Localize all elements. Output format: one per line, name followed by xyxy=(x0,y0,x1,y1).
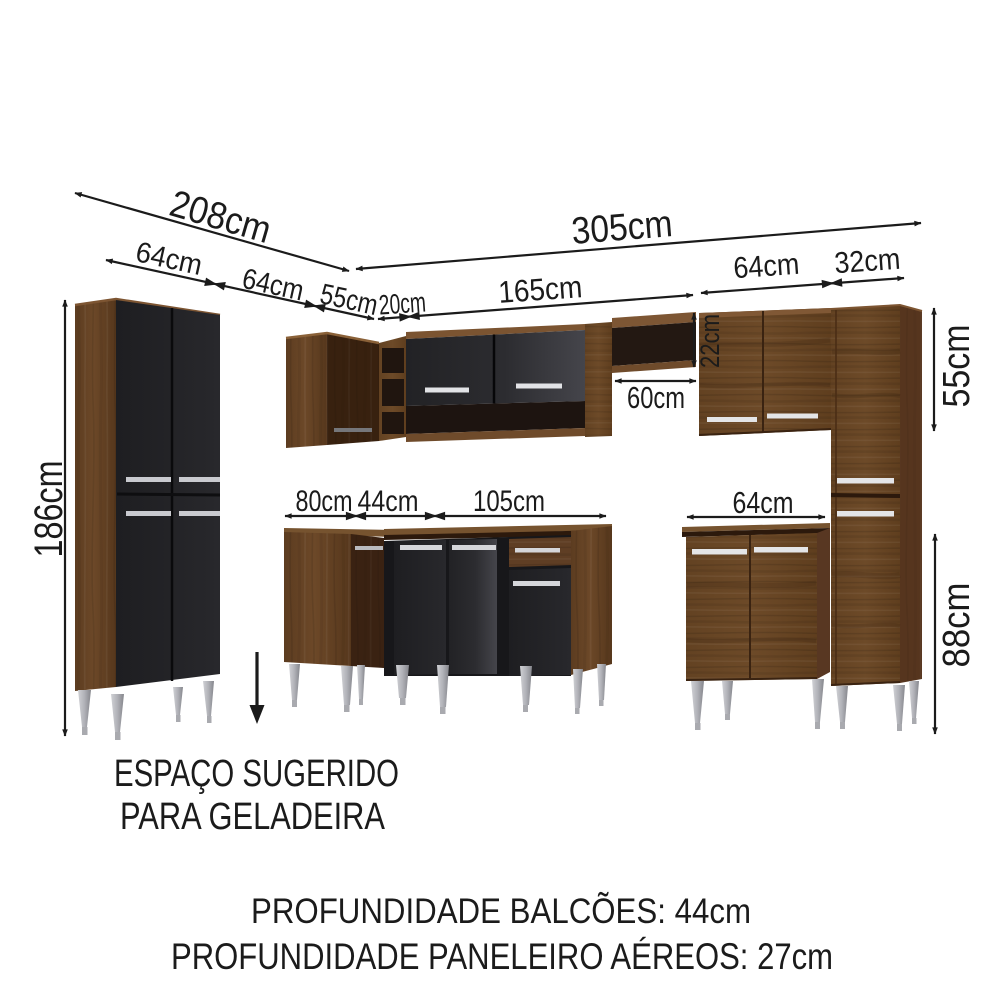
svg-text:186cm: 186cm xyxy=(27,461,71,558)
svg-text:PARA GELADEIRA: PARA GELADEIRA xyxy=(120,796,386,838)
svg-text:32cm: 32cm xyxy=(833,243,901,281)
svg-text:64cm: 64cm xyxy=(732,248,800,286)
svg-text:PROFUNDIDADE BALCÕES: 44cm: PROFUNDIDADE BALCÕES: 44cm xyxy=(251,891,751,931)
svg-text:64cm: 64cm xyxy=(733,485,794,520)
svg-text:60cm: 60cm xyxy=(627,380,685,415)
svg-text:80cm: 80cm xyxy=(296,485,353,518)
svg-text:22cm: 22cm xyxy=(695,314,725,368)
svg-text:ESPAÇO SUGERIDO: ESPAÇO SUGERIDO xyxy=(114,753,399,795)
svg-text:105cm: 105cm xyxy=(473,485,545,518)
svg-text:44cm: 44cm xyxy=(358,485,419,518)
svg-text:305cm: 305cm xyxy=(570,203,674,253)
svg-text:165cm: 165cm xyxy=(497,269,583,310)
svg-text:20cm: 20cm xyxy=(378,286,427,320)
svg-text:88cm: 88cm xyxy=(936,583,978,668)
svg-text:PROFUNDIDADE PANELEIRO AÉREOS:: PROFUNDIDADE PANELEIRO AÉREOS: 27cm xyxy=(171,936,833,977)
svg-text:55cm: 55cm xyxy=(936,325,978,408)
